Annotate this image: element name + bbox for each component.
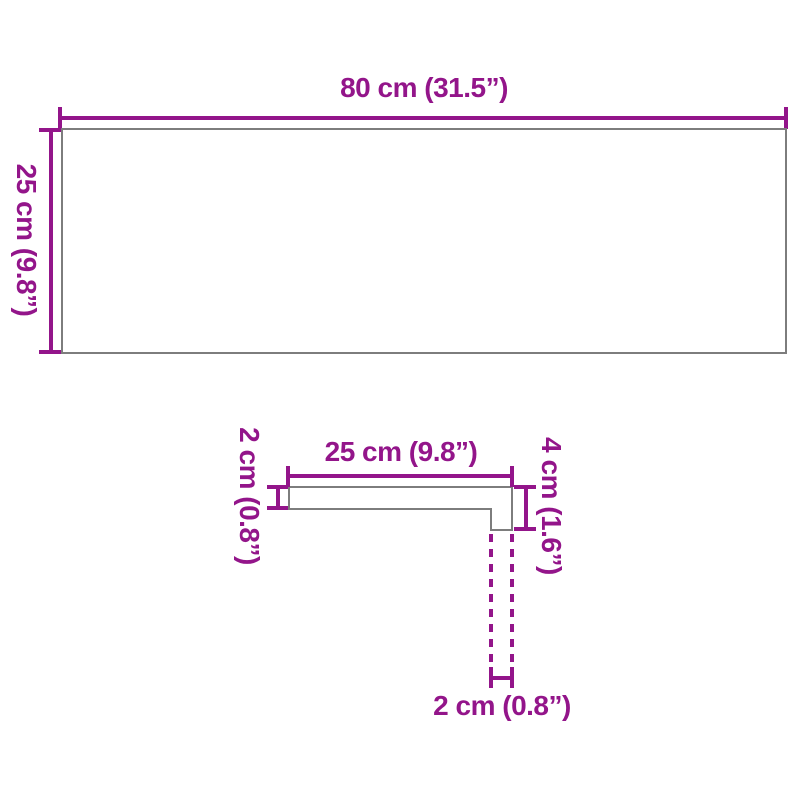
top-width-label: 80 cm (31.5”) (61, 72, 787, 104)
profile-height-tick-top (514, 485, 536, 489)
nosing-width-tick-left (489, 667, 493, 688)
profile-height-tick-bottom (514, 527, 536, 531)
profile-thickness-tick-top (267, 485, 288, 489)
top-width-tick-right (784, 107, 788, 129)
profile-width-tick-left (286, 466, 290, 487)
nosing-width-label: 2 cm (0.8”) (352, 690, 652, 722)
product-dimension-diagram: 80 cm (31.5”) 25 cm (9.8”) 25 cm (9.8”) … (0, 0, 800, 800)
nosing-projection-line-right (510, 534, 514, 671)
top-height-tick-top (39, 128, 61, 132)
nosing-projection-line-left (489, 534, 493, 671)
profile-width-dimension-line (288, 474, 514, 478)
top-height-label: 25 cm (9.8”) (10, 40, 42, 440)
nosing-width-tick-right (510, 667, 514, 688)
top-height-dimension-line (49, 128, 53, 354)
profile-height-dimension-line (524, 487, 528, 531)
profile-thickness-label: 2 cm (0.8”) (233, 296, 265, 696)
profile-width-label: 25 cm (9.8”) (288, 436, 514, 468)
top-width-dimension-line (60, 116, 788, 120)
profile-thickness-tick-bottom (267, 506, 288, 510)
tread-profile-shape (288, 485, 516, 533)
board-outline (61, 128, 787, 354)
nosing-width-dimension-line (491, 676, 512, 680)
profile-height-label: 4 cm (1.6”) (535, 306, 567, 706)
profile-width-tick-right (510, 466, 514, 487)
top-width-tick-left (58, 107, 62, 129)
top-height-tick-bottom (39, 350, 61, 354)
